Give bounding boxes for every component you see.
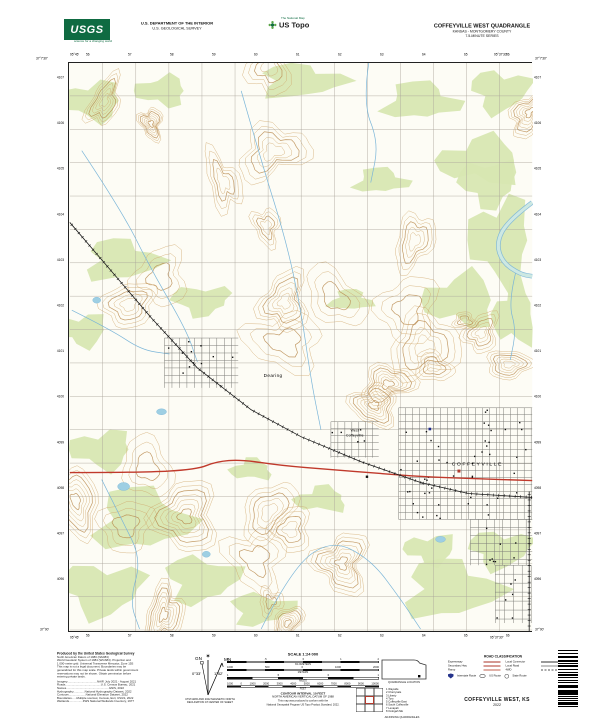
barcode-bar bbox=[558, 650, 578, 651]
pond bbox=[436, 536, 446, 542]
pond bbox=[202, 551, 210, 557]
scale-tick: 6000 bbox=[317, 682, 323, 685]
adjoining-cell bbox=[356, 696, 365, 704]
quad-location-marker bbox=[418, 675, 420, 677]
scale-tick: 1000 bbox=[227, 666, 233, 669]
road-class-label: Local Connector bbox=[506, 661, 526, 664]
grid-label: 65 bbox=[464, 53, 468, 57]
grid-label: 66 bbox=[506, 53, 510, 57]
grid-label: 59 bbox=[212, 53, 216, 57]
true-north-star: ✶ bbox=[205, 653, 210, 660]
scale-tick: 0 bbox=[328, 674, 330, 677]
barcode-bar bbox=[558, 677, 578, 678]
scale-tick: 4000 bbox=[290, 682, 296, 685]
usgs-tagline-box: science for a changing world bbox=[58, 40, 128, 48]
grid-label: 4103 bbox=[29, 258, 64, 262]
road-class-label: 4WD bbox=[506, 669, 512, 672]
grid-label: 61 bbox=[296, 53, 300, 57]
scale-tick: 500 bbox=[265, 666, 270, 669]
road-class-sample bbox=[484, 666, 501, 667]
landmark-building bbox=[457, 470, 460, 473]
adjoining-name: 8 Oologah NE bbox=[386, 710, 408, 713]
grid-label: 62 bbox=[338, 634, 342, 638]
grid-label: 58 bbox=[170, 53, 174, 57]
scale-tick: 2000 bbox=[263, 682, 269, 685]
adjoining-cell bbox=[365, 696, 374, 704]
grid-label: 64 bbox=[422, 53, 426, 57]
ustopo-logo: The National Map US Topo bbox=[268, 17, 348, 45]
road-class-sample bbox=[541, 662, 558, 663]
adjoining-cell bbox=[365, 688, 374, 696]
adjoining-cell bbox=[374, 688, 383, 696]
scale-tick: 1 bbox=[227, 674, 229, 677]
usgs-tagline: science for a changing world bbox=[58, 40, 128, 43]
grid-label: 63 bbox=[380, 53, 384, 57]
road-class-label: Ramp bbox=[448, 669, 455, 672]
quadloc-caption: QUADRANGLE LOCATION bbox=[368, 681, 440, 684]
grid-label: 4107 bbox=[29, 76, 64, 80]
adjoining-cell bbox=[356, 688, 365, 696]
grid-label: 4096 bbox=[534, 578, 541, 582]
barcode-bar bbox=[558, 692, 578, 694]
place-label: Coffeyville bbox=[346, 434, 364, 438]
quad-title-block: COFFEYVILLE WEST QUADRANGLE KANSAS - MON… bbox=[392, 23, 572, 49]
scale-tick: 1000 bbox=[250, 682, 256, 685]
grid-label: 63 bbox=[380, 634, 384, 638]
scale-tick: .5 bbox=[264, 658, 266, 661]
scale-tick: 8000 bbox=[344, 682, 350, 685]
grid-label: 4099 bbox=[534, 441, 541, 445]
grid-north-label: GN bbox=[195, 656, 202, 661]
us-shield-icon bbox=[480, 674, 486, 678]
grid-label: 95°37'30" bbox=[490, 636, 504, 640]
barcode-bar bbox=[558, 657, 578, 658]
grid-label: 4102 bbox=[29, 304, 64, 308]
grid-label: 58 bbox=[170, 634, 174, 638]
pond bbox=[93, 297, 101, 303]
quad-series: 7.5-MINUTE SERIES bbox=[392, 34, 572, 39]
place-label: West bbox=[351, 429, 359, 433]
gn-declination-value: 0°33' bbox=[192, 671, 201, 676]
grid-label: 95°37'30" bbox=[494, 53, 508, 57]
grid-label: 95°45' bbox=[70, 636, 79, 640]
interstate-shield-icon bbox=[448, 674, 454, 679]
grid-label: 4100 bbox=[29, 395, 64, 399]
barcode-bar bbox=[558, 660, 578, 662]
grid-label: 65 bbox=[464, 634, 468, 638]
grid-label: 4106 bbox=[534, 122, 541, 126]
grid-label: 59 bbox=[212, 634, 216, 638]
grid-label: 37°7'30" bbox=[36, 57, 48, 61]
grid-label: 4104 bbox=[29, 213, 64, 217]
adjoining-cell bbox=[374, 704, 383, 712]
agency-block: U.S. DEPARTMENT OF THE INTERIOR U.S. GEO… bbox=[112, 21, 242, 39]
grid-label: 4098 bbox=[29, 486, 64, 490]
grid-label: 37°7'30" bbox=[535, 57, 547, 61]
road-class-sample bbox=[484, 670, 501, 671]
adjoining-list: 1 Wayside2 Cherryvale3 Liberty4 Tyro5 Co… bbox=[386, 688, 408, 713]
grid-label: 61 bbox=[296, 634, 300, 638]
road-class-label: Local Road bbox=[506, 665, 520, 668]
adjoining-cell bbox=[374, 696, 383, 704]
scale-tick: 7000 bbox=[331, 682, 337, 685]
scale-tick: 3000 bbox=[277, 682, 283, 685]
scale-tick: 5000 bbox=[304, 682, 310, 685]
scale-tick: 0 bbox=[303, 658, 305, 661]
grid-label: 4099 bbox=[29, 441, 64, 445]
pond bbox=[157, 409, 167, 415]
adjoining-cell bbox=[365, 704, 374, 712]
grid-label: 4107 bbox=[534, 76, 541, 80]
mn-declination-value: 1°52' bbox=[214, 671, 223, 676]
barcode-bar bbox=[558, 674, 578, 676]
scale-tick: 1000 bbox=[227, 682, 233, 685]
barcode-bar bbox=[558, 686, 578, 688]
scale-tick: 0 bbox=[302, 666, 304, 669]
shield-label: US Route bbox=[489, 675, 501, 678]
adjoining-caption-box: ADJOINING QUADRANGLES bbox=[342, 716, 462, 724]
adjoining-cell bbox=[356, 704, 365, 712]
grid-label: 37°00' bbox=[40, 628, 49, 632]
sheet-year: 2022 bbox=[412, 703, 582, 708]
grid-label: 4106 bbox=[29, 122, 64, 126]
scale-tick: 1000 bbox=[335, 666, 341, 669]
scale-tick: 2000 bbox=[373, 666, 379, 669]
adjoining-grid bbox=[356, 688, 383, 713]
road-class-row: Ramp bbox=[448, 668, 501, 672]
grid-label: 66 bbox=[506, 634, 510, 638]
grid-label: 4096 bbox=[29, 578, 64, 582]
usgs-logo-text: USGS bbox=[70, 24, 103, 36]
grid-label: 4101 bbox=[29, 350, 64, 354]
road-class-label: Expressway bbox=[448, 661, 463, 664]
scale-title: SCALE 1:24 000 bbox=[226, 652, 380, 657]
sheet-name-block: COFFEYVILLE WEST, KS 2022 bbox=[412, 697, 582, 717]
grid-label: 64 bbox=[422, 634, 426, 638]
road-class-label: Secondary Hwy bbox=[448, 665, 467, 668]
grid-label: 37°00' bbox=[535, 628, 544, 632]
grid-label: 60 bbox=[254, 53, 258, 57]
barcode-bar bbox=[558, 672, 578, 673]
grid-label: 56 bbox=[86, 53, 90, 57]
ustopo-flower-icon bbox=[268, 21, 277, 30]
barcode-bar bbox=[558, 663, 578, 664]
grid-label: 4098 bbox=[534, 486, 541, 490]
road-class-sample bbox=[484, 661, 501, 662]
grid-label: 4097 bbox=[29, 532, 64, 536]
scale-tick: 2 bbox=[378, 658, 380, 661]
grid-label: 4100 bbox=[534, 395, 541, 399]
scale-tick: 9000 bbox=[358, 682, 364, 685]
road-class-row: 4WD bbox=[506, 668, 559, 672]
grid-label: 60 bbox=[254, 634, 258, 638]
barcode-bar bbox=[558, 682, 578, 684]
road-class-title: ROAD CLASSIFICATION bbox=[448, 655, 558, 659]
agency-line2: U.S. GEOLOGICAL SURVEY bbox=[112, 26, 242, 31]
grid-label: 4101 bbox=[534, 350, 541, 354]
landmark-building bbox=[429, 428, 432, 431]
map-area: DearingWestCoffeyvilleCOFFEYVILLE bbox=[68, 62, 532, 632]
barcode-bar bbox=[558, 653, 578, 654]
grid-label: 4097 bbox=[534, 532, 541, 536]
shield-label: Interstate Route bbox=[457, 675, 476, 678]
scale-tick: 1 bbox=[377, 674, 379, 677]
grid-label: 4102 bbox=[534, 304, 541, 308]
grid-label: 4105 bbox=[29, 167, 64, 171]
scale-tick: 0 bbox=[241, 682, 243, 685]
usgs-topo-sheet: USGS science for a changing world U.S. D… bbox=[0, 0, 600, 725]
place-label: COFFEYVILLE bbox=[452, 462, 503, 468]
grid-label: 4104 bbox=[534, 213, 541, 217]
grid-label: 57 bbox=[128, 634, 132, 638]
grid-label: 4105 bbox=[534, 167, 541, 171]
grid-label: 56 bbox=[86, 634, 90, 638]
ustopo-brand: US Topo bbox=[279, 21, 309, 30]
barcode-bar bbox=[558, 665, 578, 667]
shield-label: State Route bbox=[512, 675, 526, 678]
road-class-sample bbox=[541, 666, 558, 667]
grid-label: 4103 bbox=[534, 258, 541, 262]
usgs-logo: USGS bbox=[64, 19, 110, 40]
grid-label: 62 bbox=[338, 53, 342, 57]
road-class-sample bbox=[541, 670, 558, 671]
state-shield-icon bbox=[504, 674, 509, 679]
landmark-building bbox=[366, 476, 368, 478]
scale-tick: .5 bbox=[277, 674, 279, 677]
topo-map-canvas: DearingWestCoffeyvilleCOFFEYVILLE bbox=[69, 63, 533, 631]
grid-label: 57 bbox=[128, 53, 132, 57]
barcode-bar bbox=[558, 669, 578, 670]
pond bbox=[118, 483, 130, 491]
road-classification-legend: ROAD CLASSIFICATION ExpresswaySecondary … bbox=[448, 655, 558, 699]
place-label: Dearing bbox=[264, 373, 283, 378]
scale-tick: 1 bbox=[227, 658, 229, 661]
scale-tick: 1 bbox=[340, 658, 342, 661]
grid-label: 95°45' bbox=[70, 53, 79, 57]
